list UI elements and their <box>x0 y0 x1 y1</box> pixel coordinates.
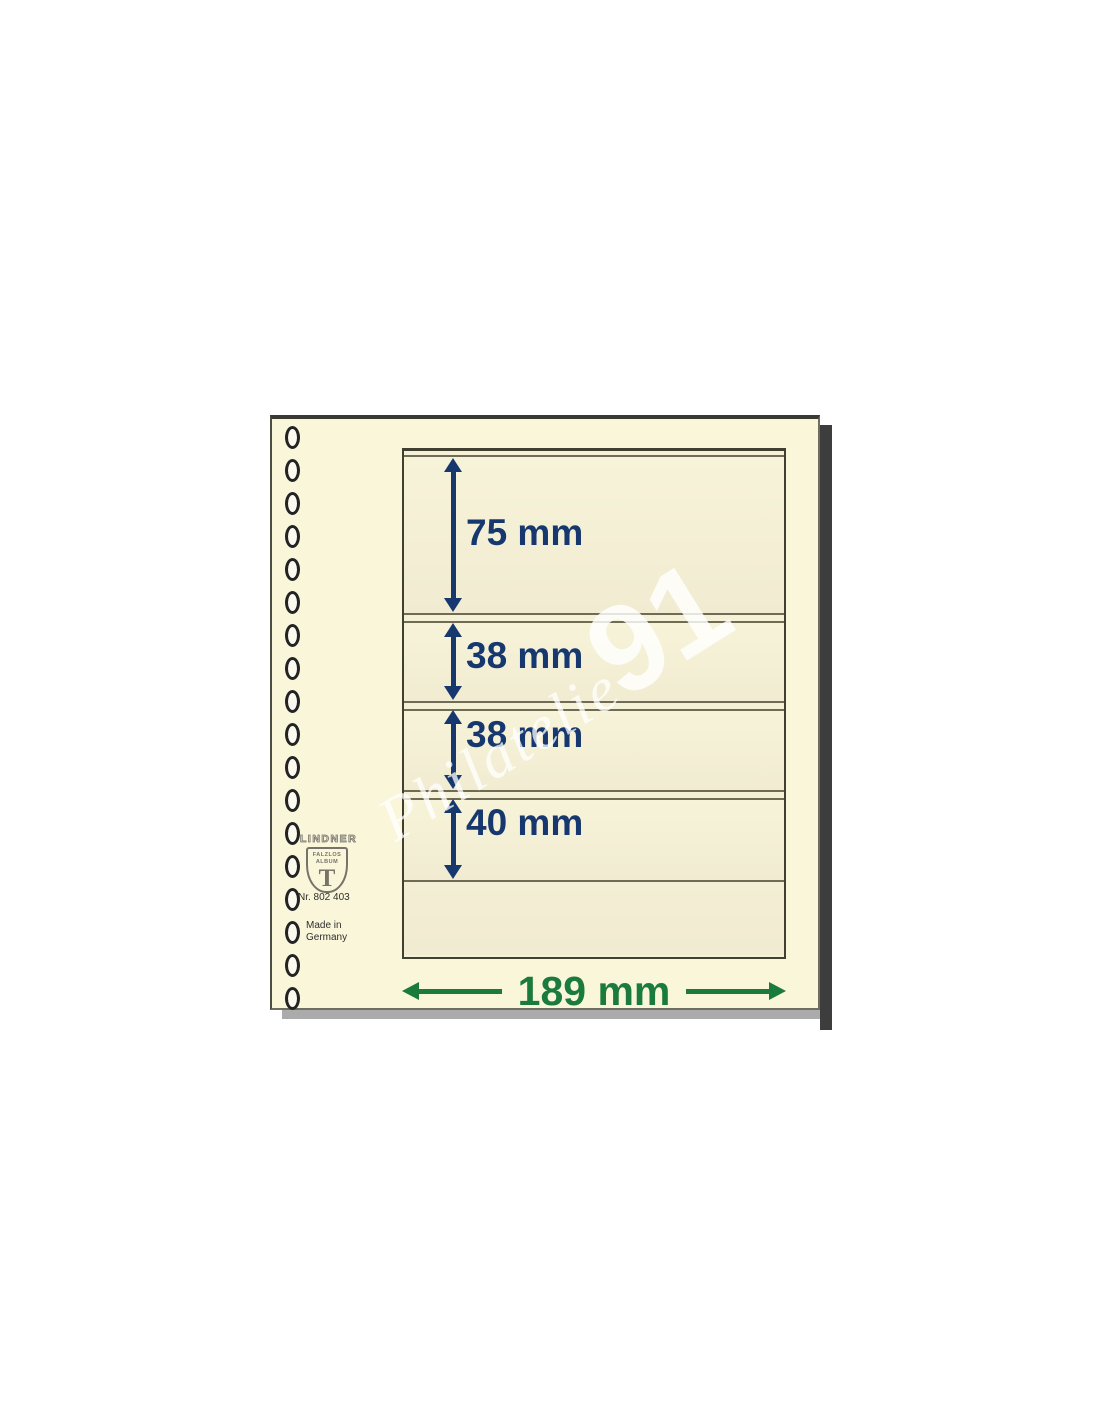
arrow-left-icon <box>402 982 419 1000</box>
shield-text: FALZLOS ALBUM <box>308 852 346 865</box>
arrow-down-icon <box>444 775 462 789</box>
punch-hole <box>285 426 300 449</box>
made-in-label: Made in Germany <box>306 920 347 944</box>
arrow-up-icon <box>444 458 462 472</box>
punch-hole <box>285 492 300 515</box>
punch-hole <box>285 591 300 614</box>
punch-hole <box>285 921 300 944</box>
pocket-top-weld-line <box>404 455 784 457</box>
pocket-divider-line <box>404 880 784 882</box>
pocket-divider-line <box>404 790 784 792</box>
punch-hole <box>285 657 300 680</box>
punch-hole <box>285 789 300 812</box>
vertical-dimension-arrow-2 <box>444 623 462 700</box>
pocket-1-height-label: 75 mm <box>466 513 583 553</box>
vertical-dimension-arrow-3 <box>444 710 462 789</box>
arrow-right-icon <box>769 982 786 1000</box>
vertical-dimension-arrow-4 <box>444 799 462 879</box>
punch-hole <box>285 690 300 713</box>
brand-name: LINDNER <box>300 833 370 845</box>
punch-hole <box>285 459 300 482</box>
punch-hole <box>285 954 300 977</box>
arrow-down-icon <box>444 865 462 879</box>
made-in-line1: Made in <box>306 920 347 932</box>
made-in-line2: Germany <box>306 932 347 944</box>
product-image-canvas: LINDNER FALZLOS ALBUM T Nr. 802 403 Made… <box>0 0 1100 1422</box>
punch-hole <box>285 624 300 647</box>
pocket-4-height-label: 40 mm <box>466 803 583 843</box>
arrow-up-icon <box>444 799 462 813</box>
punch-hole <box>285 987 300 1010</box>
shield-letter: T <box>308 866 346 892</box>
lindner-logo: LINDNER FALZLOS ALBUM T <box>300 833 370 893</box>
pocket-divider-line <box>404 701 784 703</box>
pocket-3-height-label: 38 mm <box>466 715 583 755</box>
pocket-frame: 75 mm 38 mm 38 mm 40 mm <box>402 448 786 959</box>
sheet-footer-area <box>404 882 784 955</box>
arrow-up-icon <box>444 623 462 637</box>
arrow-down-icon <box>444 598 462 612</box>
pocket-2-height-label: 38 mm <box>466 636 583 676</box>
shield-text-line1: FALZLOS <box>308 852 346 859</box>
arrow-up-icon <box>444 710 462 724</box>
punch-hole <box>285 723 300 746</box>
punch-hole <box>285 525 300 548</box>
punch-hole <box>285 558 300 581</box>
album-page: LINDNER FALZLOS ALBUM T Nr. 802 403 Made… <box>270 415 820 1010</box>
brand-shield-icon: FALZLOS ALBUM T <box>306 847 348 893</box>
arrow-down-icon <box>444 686 462 700</box>
width-label: 189 mm <box>518 971 671 1012</box>
punch-hole <box>285 822 300 845</box>
vertical-dimension-arrow-1 <box>444 458 462 612</box>
pocket-divider-line <box>404 613 784 615</box>
punch-hole <box>285 756 300 779</box>
width-dimension: 189 mm <box>402 970 786 1012</box>
part-number: Nr. 802 403 <box>298 892 350 903</box>
punch-hole <box>285 855 300 878</box>
